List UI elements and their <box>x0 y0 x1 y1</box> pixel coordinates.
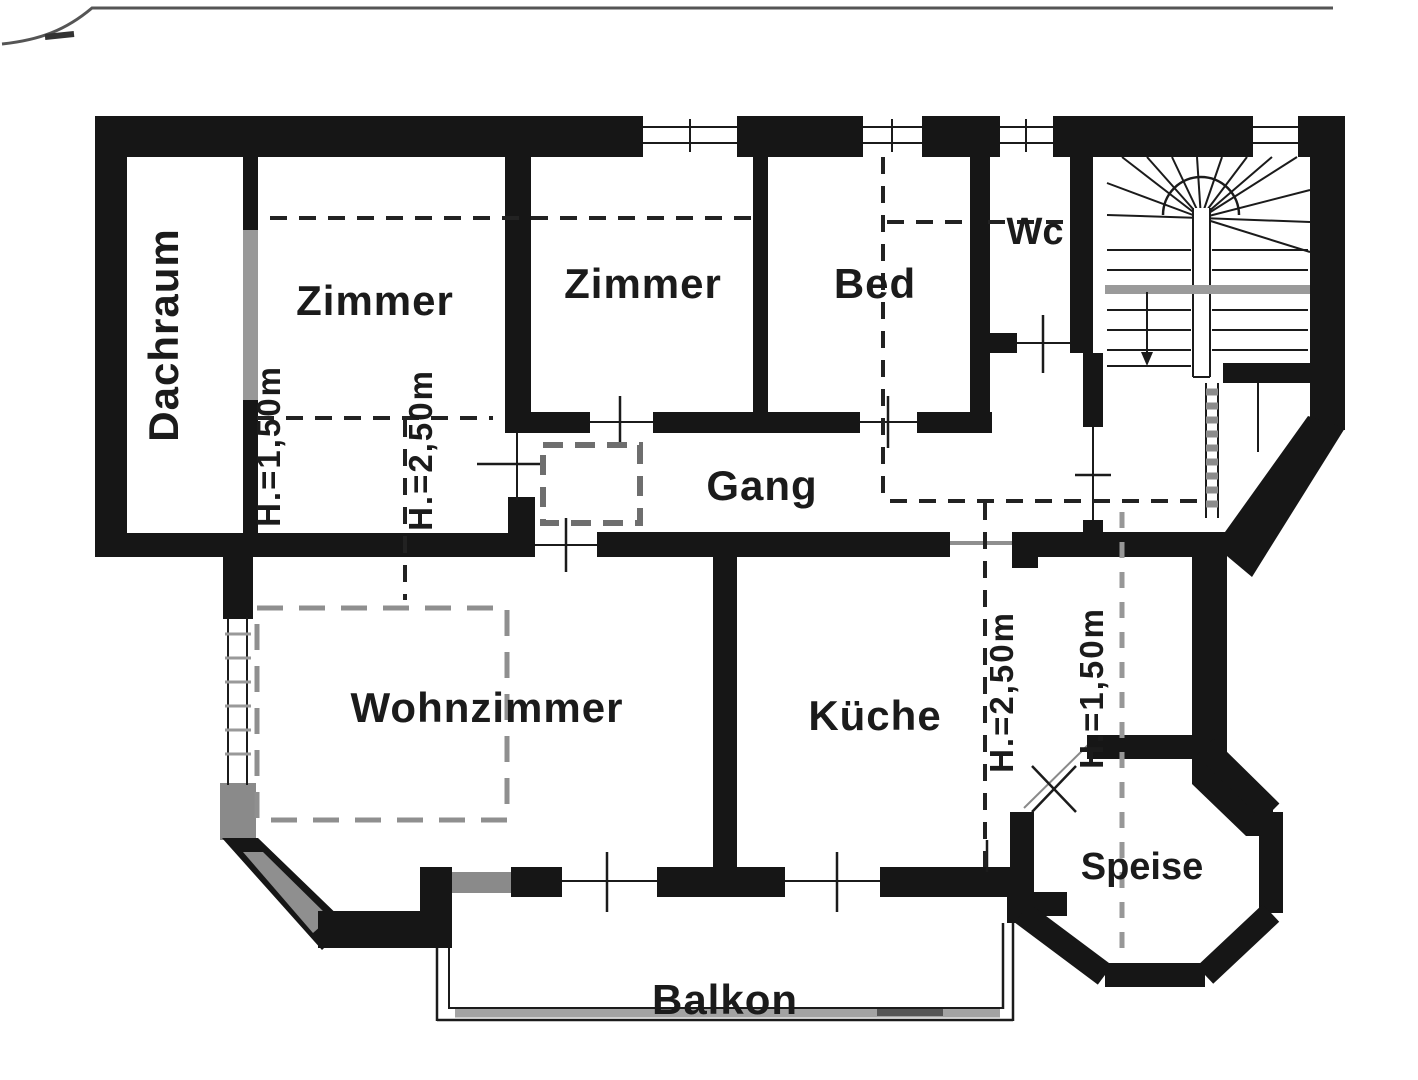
wall-corner-block <box>1012 532 1038 568</box>
door-balkon-wohnzimmer <box>562 852 657 912</box>
wall-sw-gray <box>220 783 256 840</box>
door-wc <box>1017 315 1070 373</box>
page-curl-line <box>2 8 1333 44</box>
wall-wohnzimmer-west-stub <box>223 557 253 619</box>
door-zimmer1 <box>477 433 545 500</box>
octagon-wall-bottomleft <box>1022 913 1105 975</box>
wall-right-outer <box>1310 116 1345 430</box>
wall-wohnzimmer-kueche-divider <box>713 557 737 897</box>
wall-south-gray-segment <box>452 872 511 893</box>
wall-stairhall-west-block <box>1083 520 1103 535</box>
room-label-speise: Speise <box>1081 846 1204 888</box>
window-wc-top <box>1000 119 1053 152</box>
door-stair-hall <box>1075 427 1111 520</box>
octagon-wall-bottomright <box>1205 913 1271 975</box>
room-label-gang: Gang <box>706 462 817 509</box>
room-label-zimmer-1: Zimmer <box>296 277 454 324</box>
wall-top-segment <box>1053 116 1253 157</box>
room-label-dachraum: Dachraum <box>140 228 187 441</box>
door-zimmer2 <box>590 396 653 448</box>
wall-gang-south-mid <box>597 532 950 557</box>
room-label-balkon: Balkon <box>652 976 798 1023</box>
wall-bed-south <box>767 412 860 433</box>
stair-section-line <box>1105 285 1310 294</box>
wall-ne-chamfer <box>1215 416 1345 577</box>
wall-stairhall-west <box>1070 157 1093 353</box>
window-zimmer2-top <box>643 119 737 152</box>
room-label-wohnzimmer: Wohnzimmer <box>351 684 624 731</box>
wall-zimmer-divider <box>505 157 531 433</box>
wall-gang-south-east <box>1012 532 1197 557</box>
floor-plan-canvas: Dachraum Zimmer Zimmer Bed Wc Gang Wohnz… <box>0 0 1418 1080</box>
wall-zimmer2-south <box>653 412 767 433</box>
height-label-right-250: H.=2,50m <box>983 611 1020 773</box>
door-bed <box>860 396 917 448</box>
window-stair-top <box>1253 127 1298 143</box>
window-bed-top <box>863 119 922 152</box>
wall-top-segment <box>95 116 643 157</box>
wall-kueche-east <box>1192 532 1227 762</box>
door-wohnzimmer <box>535 518 597 572</box>
page-curl-mark <box>45 34 74 37</box>
wall-bed-west <box>753 157 768 433</box>
room-label-zimmer-2: Zimmer <box>564 260 722 307</box>
wall-top-segment <box>922 116 1000 157</box>
page-scan-artifacts <box>2 8 1333 44</box>
chimney-dashed-square <box>543 445 640 523</box>
wall-south-segment <box>511 867 562 897</box>
height-label-right-150: H.=1,50m <box>1073 607 1110 769</box>
door-balkon-kueche <box>785 852 880 912</box>
wall-left-outer <box>95 116 127 557</box>
wall-sw-corner <box>318 867 452 948</box>
wall-under-stair <box>1223 363 1310 383</box>
room-label-kueche: Küche <box>808 692 941 739</box>
room-label-wc: Wc <box>1007 211 1064 253</box>
wall-wc-west <box>970 157 990 433</box>
window-wohnzimmer-left <box>225 617 251 785</box>
floor-plan-page: Dachraum Zimmer Zimmer Bed Wc Gang Wohnz… <box>0 0 1418 1080</box>
stair-treads-right <box>1212 250 1308 350</box>
height-label-left-250: H.=2,50m <box>402 369 439 531</box>
wall-south-segment <box>880 867 1010 897</box>
stair-treads-left <box>1107 250 1191 366</box>
wall-wc-south <box>988 333 1017 353</box>
wall-stairhall-west-lower <box>1083 353 1103 427</box>
room-label-bed: Bed <box>834 260 916 307</box>
wall-sw-chamfer-gray <box>243 852 330 933</box>
wall-zimmer2-south <box>531 412 590 433</box>
height-label-left-150: H.=1,50m <box>250 365 287 527</box>
wall-top-segment <box>737 116 863 157</box>
wall-gang-south-west <box>95 533 535 557</box>
wall-corner-block <box>508 497 535 557</box>
